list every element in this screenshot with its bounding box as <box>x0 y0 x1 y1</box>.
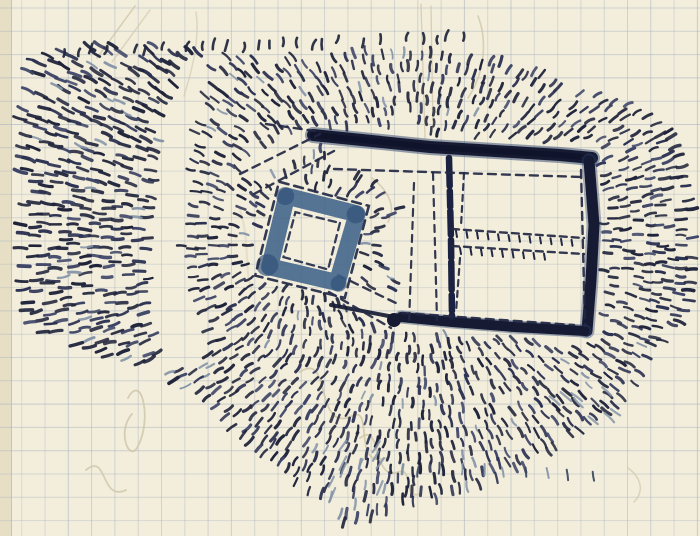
scanned-notebook-page <box>0 0 700 536</box>
inner-dividing-wall <box>449 158 452 317</box>
earthwork-plan-sketch <box>0 0 700 536</box>
east-rampart <box>587 161 594 331</box>
